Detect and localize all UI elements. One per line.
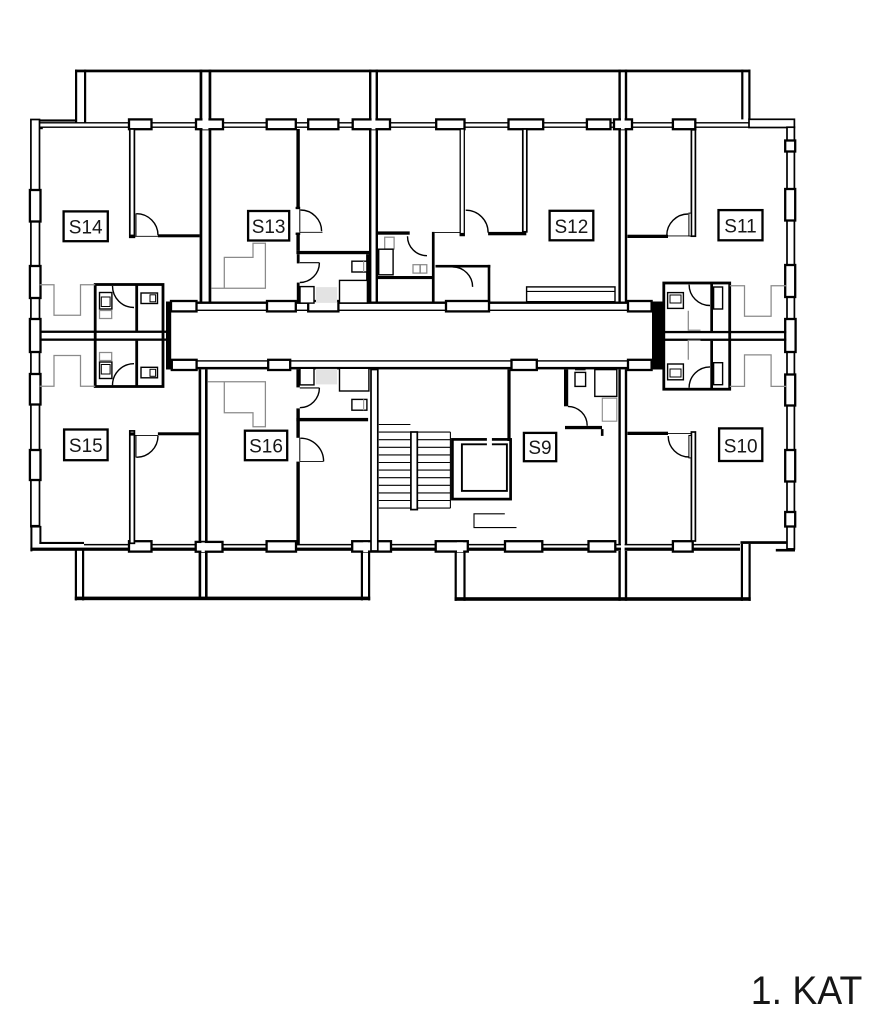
svg-text:S14: S14: [69, 218, 103, 239]
svg-text:S13: S13: [252, 217, 286, 238]
svg-text:S16: S16: [249, 437, 283, 458]
svg-text:S9: S9: [528, 438, 551, 459]
svg-text:S12: S12: [554, 217, 588, 238]
svg-text:1. KAT: 1. KAT: [751, 969, 863, 1013]
svg-text:S11: S11: [724, 217, 756, 238]
svg-text:S15: S15: [69, 436, 103, 457]
svg-text:S10: S10: [724, 436, 758, 457]
